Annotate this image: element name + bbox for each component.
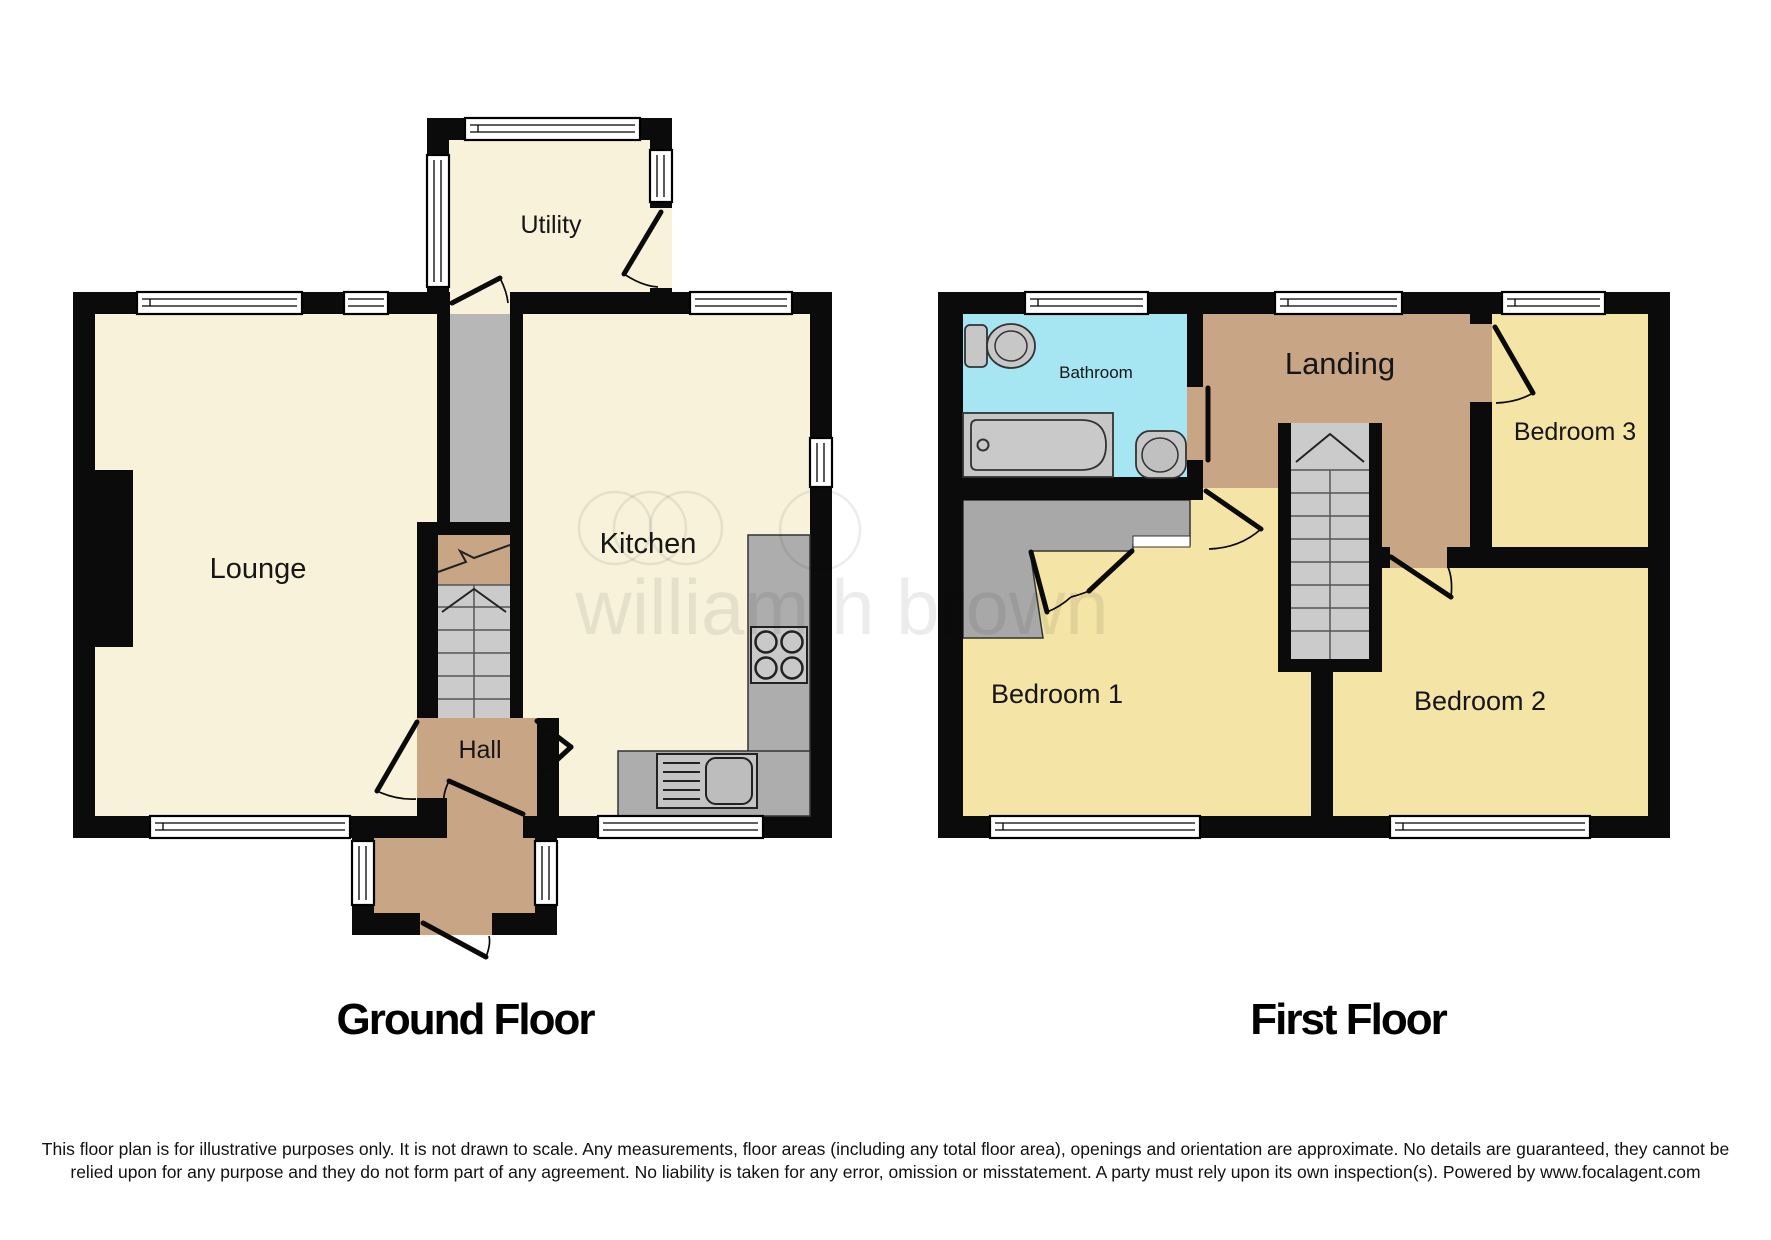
- room-label-lounge: Lounge: [210, 553, 307, 585]
- window: [1275, 292, 1402, 314]
- window: [427, 155, 449, 287]
- bathtub-icon: [963, 413, 1113, 477]
- room-label-bedroom3: Bedroom 3: [1514, 418, 1636, 446]
- ground-floor-plan: [73, 118, 832, 957]
- watermark-brand-text: william h brown: [574, 563, 1108, 651]
- ground-floor-title: Ground Floor: [336, 995, 593, 1045]
- bathroom-doorway-floor: [1187, 387, 1203, 460]
- window: [150, 816, 350, 838]
- utility-doorway-floor: [450, 292, 510, 314]
- window: [344, 292, 388, 314]
- window: [650, 150, 672, 202]
- stair-passage-floor: [450, 314, 510, 522]
- window: [990, 816, 1200, 838]
- room-label-utility: Utility: [520, 211, 582, 239]
- floorplan-page: william h brown Utility Lounge Kitchen H…: [0, 0, 1771, 1240]
- window: [465, 118, 640, 140]
- window: [810, 438, 832, 487]
- sink-icon: [657, 754, 757, 808]
- room-label-bathroom: Bathroom: [1059, 363, 1133, 382]
- room-label-kitchen: Kitchen: [600, 528, 697, 560]
- disclaimer-text: This floor plan is for illustrative purp…: [40, 1138, 1731, 1185]
- staircase-first-floor: [1278, 423, 1382, 672]
- window: [1025, 292, 1148, 314]
- basin-icon: [1136, 431, 1186, 478]
- porch-doorway-floor: [420, 913, 492, 935]
- front-doorway-floor: [447, 816, 523, 838]
- window: [690, 292, 792, 314]
- staircase-ground: [438, 535, 510, 718]
- porch-floor: [374, 838, 535, 913]
- toilet-icon: [965, 324, 1035, 368]
- room-label-bedroom1: Bedroom 1: [991, 679, 1123, 709]
- floorplan-drawing: william h brown Utility Lounge Kitchen H…: [0, 0, 1771, 1240]
- room-label-landing: Landing: [1285, 346, 1395, 381]
- window: [535, 841, 557, 905]
- room-label-hall: Hall: [458, 736, 501, 764]
- room-label-bedroom2: Bedroom 2: [1414, 686, 1546, 716]
- bedroom3-doorway-floor: [1470, 324, 1492, 402]
- window: [598, 816, 763, 838]
- utility-side-doorway: [650, 208, 672, 288]
- window: [352, 841, 374, 905]
- chimney-breast: [95, 470, 133, 647]
- first-floor-title: First Floor: [1250, 995, 1446, 1045]
- window: [1502, 292, 1605, 314]
- window: [137, 292, 302, 314]
- window: [1390, 816, 1590, 838]
